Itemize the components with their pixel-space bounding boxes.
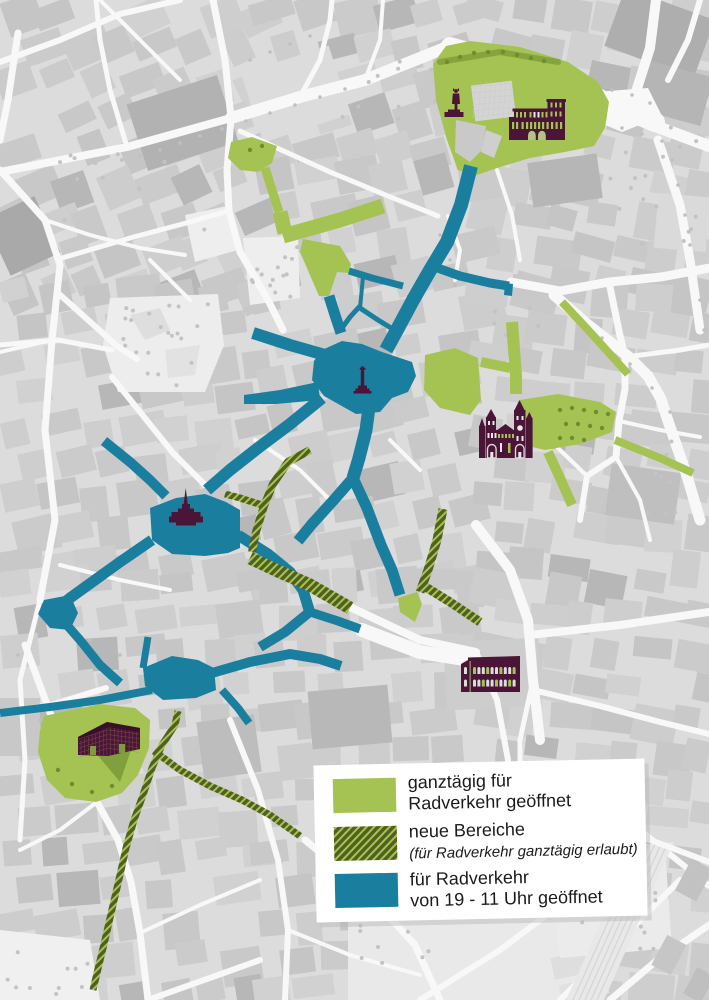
- svg-text:von 19 - 11 Uhr geöffnet: von 19 - 11 Uhr geöffnet: [410, 886, 603, 910]
- svg-text:für Radverkehr: für Radverkehr: [410, 867, 529, 889]
- svg-text:Radverkehr geöffnet: Radverkehr geöffnet: [408, 790, 571, 813]
- svg-text:ganztägig für: ganztägig für: [408, 770, 512, 792]
- svg-text:neue Bereiche: neue Bereiche: [409, 819, 525, 841]
